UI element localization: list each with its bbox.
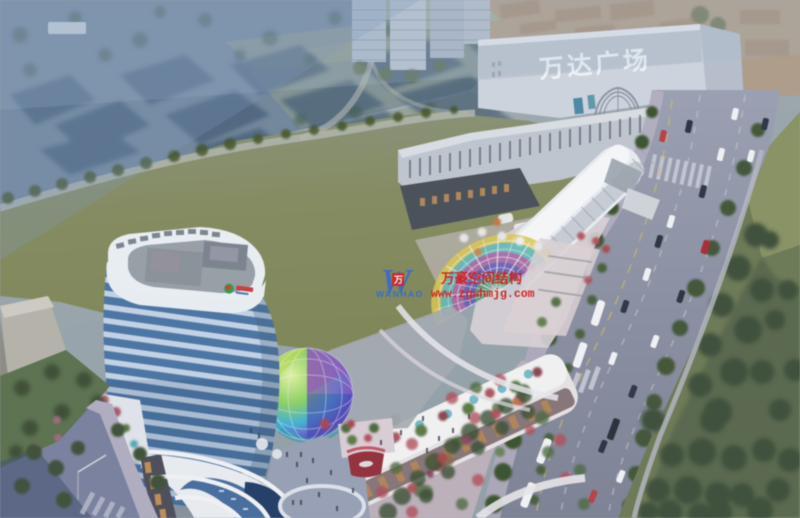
svg-text:万: 万 <box>393 275 403 285</box>
svg-text:www.zgwhmjg.com: www.zgwhmjg.com <box>431 288 535 301</box>
svg-text:WANHAO: WANHAO <box>376 289 424 299</box>
svg-text:万豪空间结构: 万豪空间结构 <box>440 270 522 286</box>
